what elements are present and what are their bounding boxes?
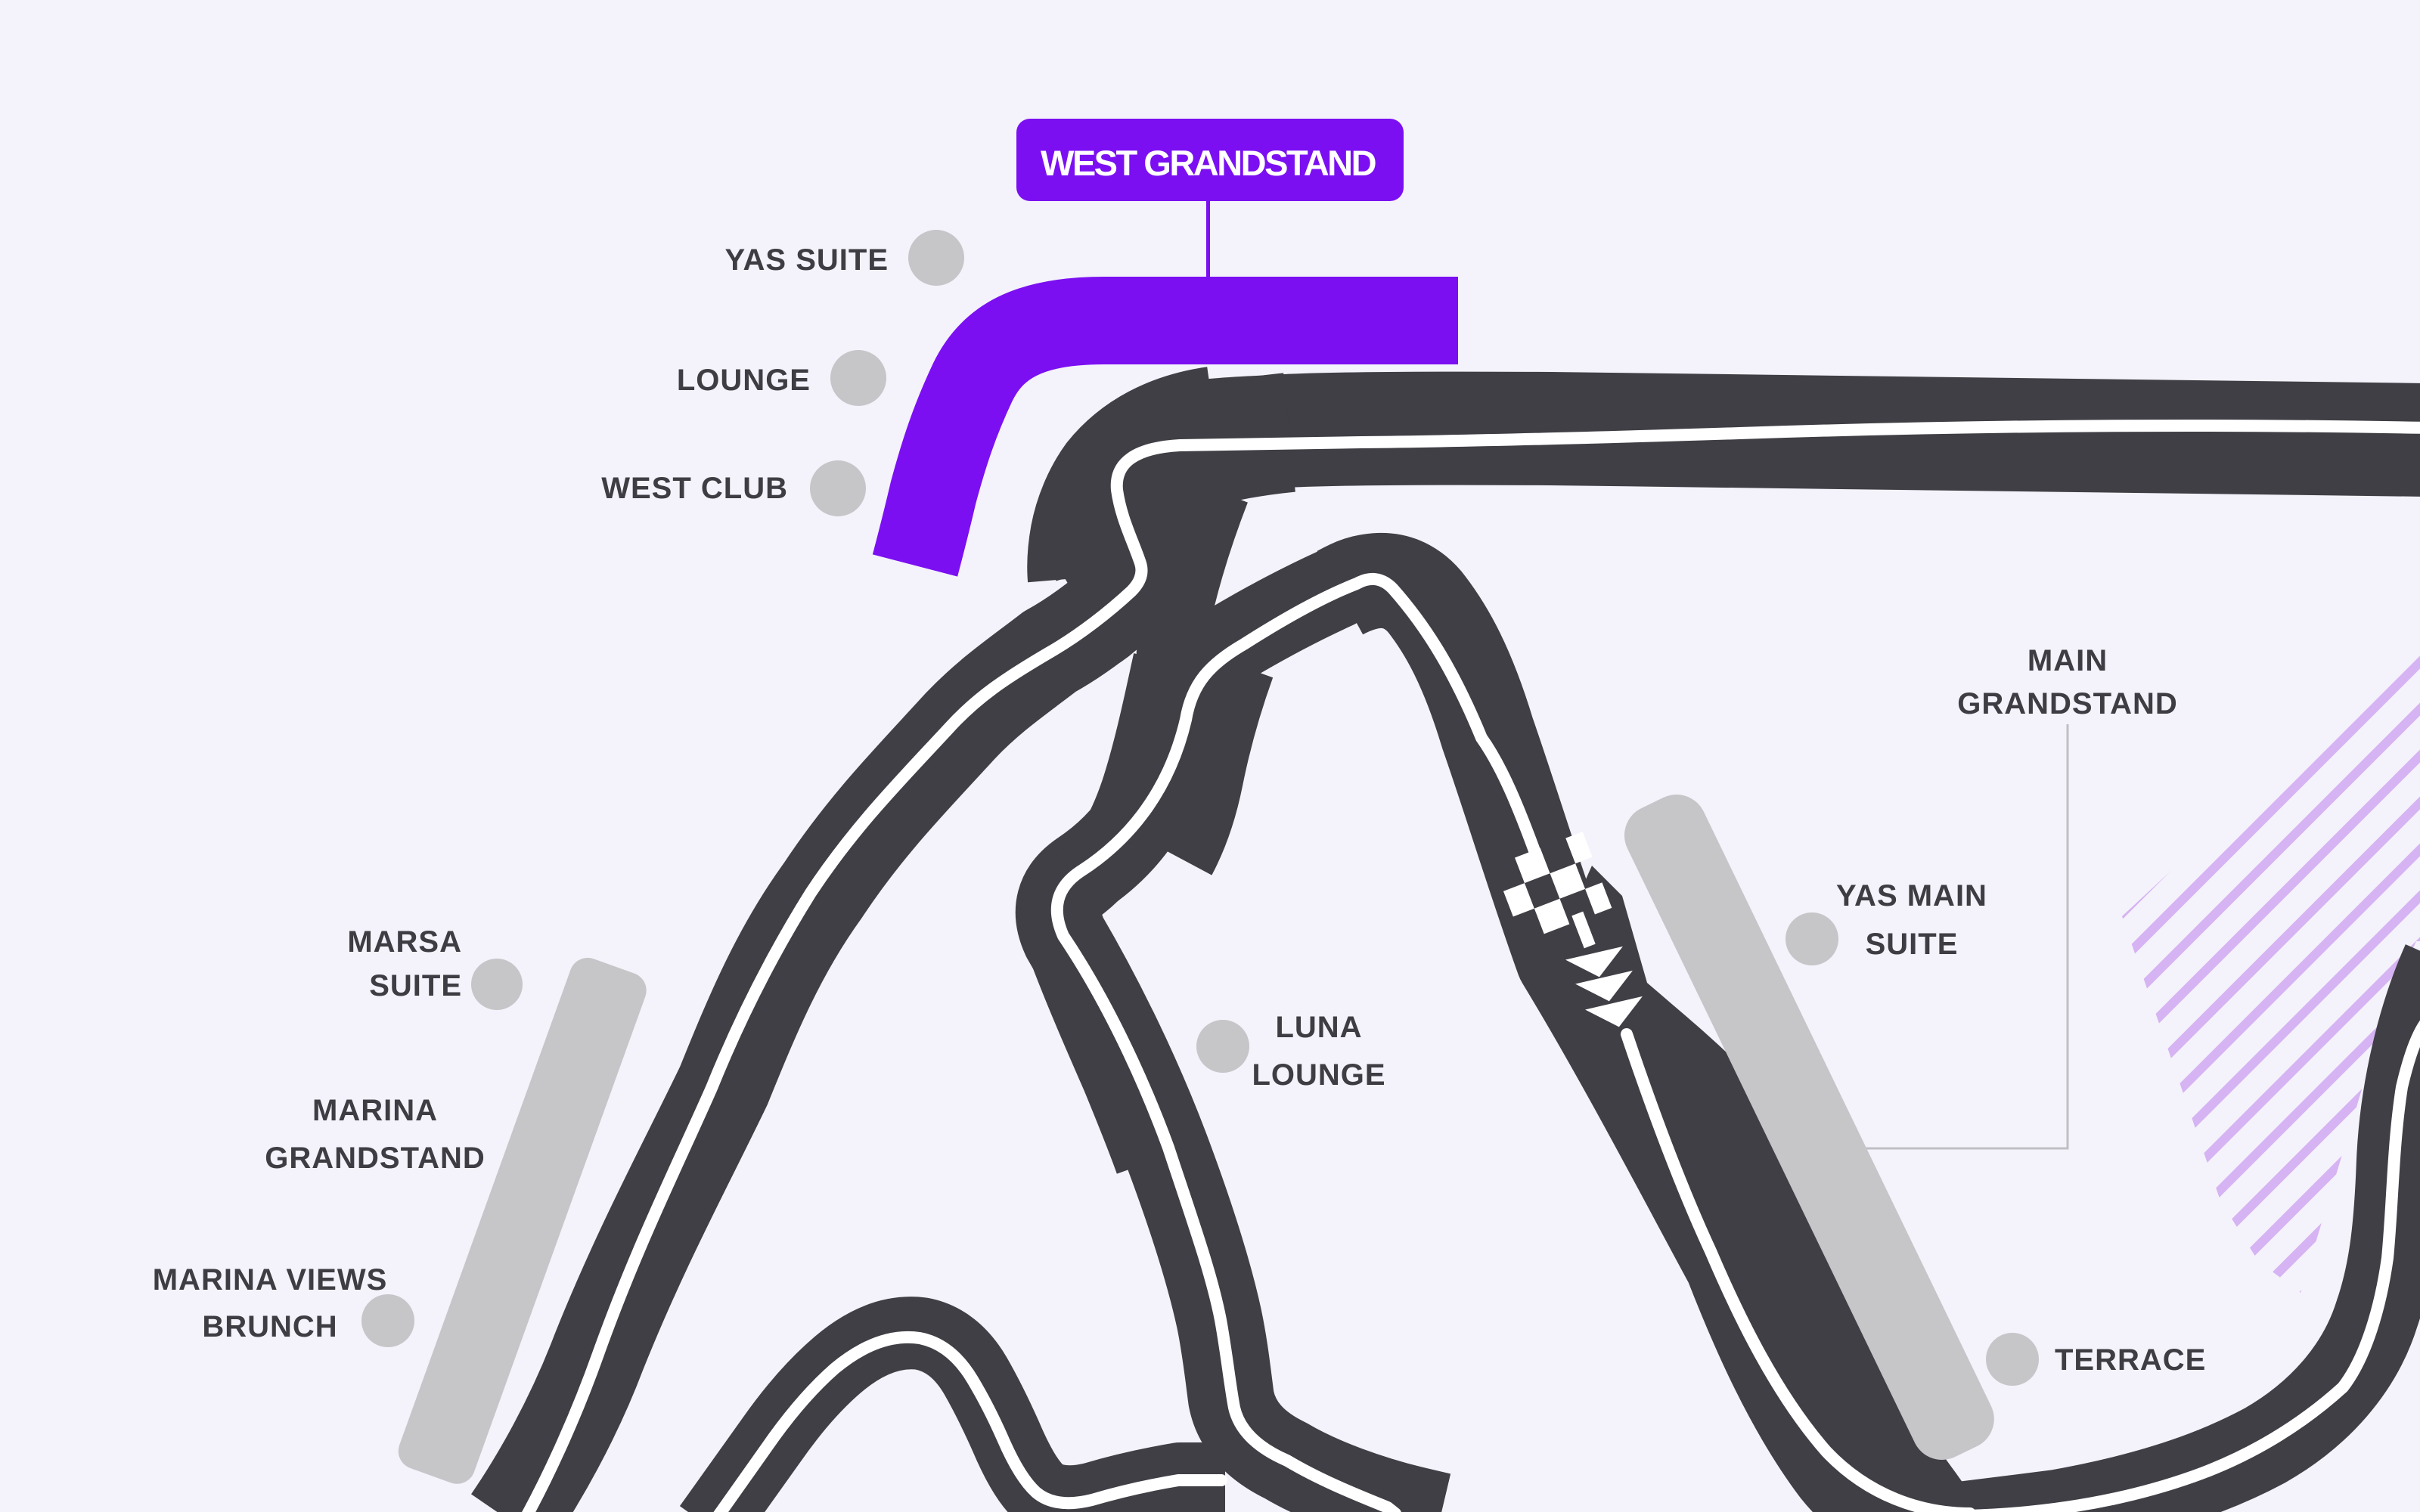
svg-text:BRUNCH: BRUNCH <box>202 1310 337 1343</box>
svg-text:LOUNGE: LOUNGE <box>1252 1058 1385 1092</box>
svg-text:GRANDSTAND: GRANDSTAND <box>265 1142 485 1175</box>
svg-text:WEST GRANDSTAND: WEST GRANDSTAND <box>1041 143 1376 183</box>
svg-text:LOUNGE: LOUNGE <box>677 364 811 397</box>
svg-text:GRANDSTAND: GRANDSTAND <box>1957 687 2177 720</box>
svg-text:WEST CLUB: WEST CLUB <box>601 472 788 505</box>
svg-text:MARINA: MARINA <box>312 1094 438 1127</box>
svg-text:MAIN: MAIN <box>2028 644 2108 677</box>
svg-text:YAS SUITE: YAS SUITE <box>725 243 889 277</box>
svg-text:SUITE: SUITE <box>369 969 462 1002</box>
svg-text:LUNA: LUNA <box>1275 1011 1362 1044</box>
svg-text:MARINA VIEWS: MARINA VIEWS <box>153 1263 388 1297</box>
svg-text:YAS MAIN: YAS MAIN <box>1836 879 1987 912</box>
svg-text:SUITE: SUITE <box>1866 928 1959 961</box>
svg-text:TERRACE: TERRACE <box>2055 1343 2206 1377</box>
svg-text:MARSA: MARSA <box>347 925 462 959</box>
